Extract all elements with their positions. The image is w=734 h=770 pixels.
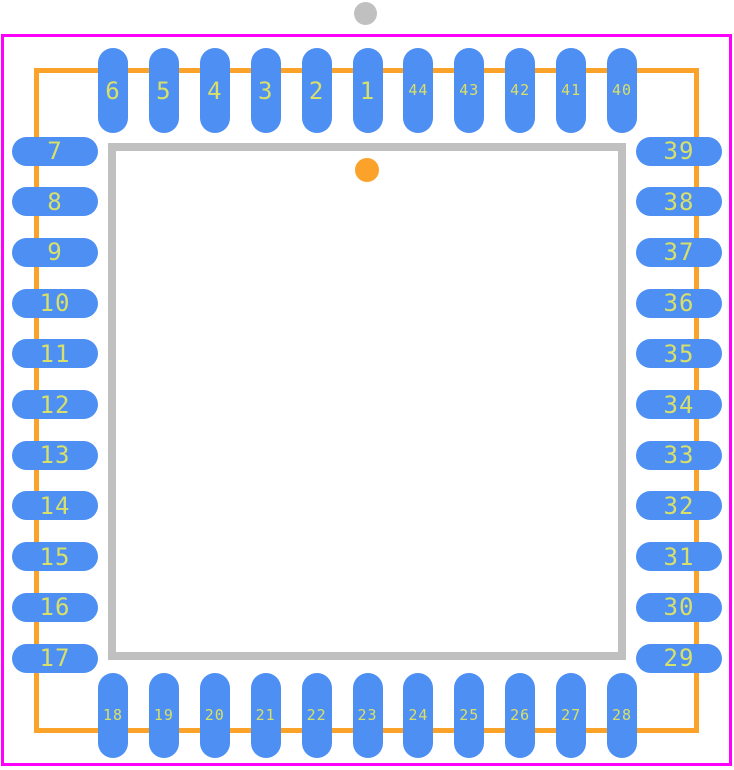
pad-number: 16 (40, 595, 71, 619)
pad-32[interactable]: 32 (636, 491, 722, 520)
pad-33[interactable]: 33 (636, 441, 722, 470)
pad-35[interactable]: 35 (636, 339, 722, 368)
pad-number: 37 (664, 240, 695, 264)
pad-number: 4 (207, 79, 222, 103)
pad-5[interactable]: 5 (149, 48, 179, 133)
pad-25[interactable]: 25 (454, 673, 484, 758)
pad-18[interactable]: 18 (98, 673, 128, 758)
pin1-indicator-dot (355, 158, 379, 182)
pad-31[interactable]: 31 (636, 542, 722, 571)
pad-17[interactable]: 17 (12, 644, 98, 673)
pad-30[interactable]: 30 (636, 593, 722, 622)
pad-number: 12 (40, 393, 71, 417)
pad-number: 40 (612, 83, 632, 98)
pad-6[interactable]: 6 (98, 48, 128, 133)
pad-number: 29 (664, 646, 695, 670)
pad-34[interactable]: 34 (636, 390, 722, 419)
pad-number: 17 (40, 646, 71, 670)
pad-15[interactable]: 15 (12, 542, 98, 571)
pad-number: 13 (40, 443, 71, 467)
pad-29[interactable]: 29 (636, 644, 722, 673)
pad-number: 35 (664, 342, 695, 366)
pad-20[interactable]: 20 (200, 673, 230, 758)
pad-number: 6 (105, 79, 120, 103)
pad-number: 25 (459, 708, 479, 723)
pad-number: 33 (664, 443, 695, 467)
pad-4[interactable]: 4 (200, 48, 230, 133)
pad-number: 23 (357, 708, 377, 723)
pad-number: 39 (664, 139, 695, 163)
footprint-diagram: 6543214443424140181920212223242526272878… (0, 0, 734, 770)
pad-number: 14 (40, 494, 71, 518)
pad-number: 8 (47, 190, 62, 214)
pad-number: 20 (205, 708, 225, 723)
pad-40[interactable]: 40 (607, 48, 637, 133)
pad-number: 44 (408, 83, 428, 98)
pad-37[interactable]: 37 (636, 238, 722, 267)
pad-38[interactable]: 38 (636, 187, 722, 216)
pad-number: 27 (561, 708, 581, 723)
pad-3[interactable]: 3 (251, 48, 281, 133)
pad-41[interactable]: 41 (556, 48, 586, 133)
pad-44[interactable]: 44 (403, 48, 433, 133)
pad-number: 22 (307, 708, 327, 723)
pad-number: 26 (510, 708, 530, 723)
pad-number: 1 (360, 79, 375, 103)
pad-number: 19 (154, 708, 174, 723)
pad-42[interactable]: 42 (505, 48, 535, 133)
pad-22[interactable]: 22 (302, 673, 332, 758)
pad-number: 3 (258, 79, 273, 103)
pad-number: 7 (47, 139, 62, 163)
pad-28[interactable]: 28 (607, 673, 637, 758)
pad-43[interactable]: 43 (454, 48, 484, 133)
pad-27[interactable]: 27 (556, 673, 586, 758)
pad-16[interactable]: 16 (12, 593, 98, 622)
pad-10[interactable]: 10 (12, 289, 98, 318)
pad-number: 32 (664, 494, 695, 518)
pad-36[interactable]: 36 (636, 289, 722, 318)
pad-number: 31 (664, 545, 695, 569)
pad-number: 24 (408, 708, 428, 723)
pad-number: 15 (40, 545, 71, 569)
component-body-outline (108, 143, 626, 660)
pad-26[interactable]: 26 (505, 673, 535, 758)
pad-19[interactable]: 19 (149, 673, 179, 758)
pad-number: 30 (664, 595, 695, 619)
pad-number: 10 (40, 291, 71, 315)
pad-23[interactable]: 23 (353, 673, 383, 758)
pad-number: 34 (664, 393, 695, 417)
pad-number: 11 (40, 342, 71, 366)
pad-14[interactable]: 14 (12, 491, 98, 520)
pad-number: 2 (309, 79, 324, 103)
origin-marker-dot (354, 2, 377, 25)
pad-7[interactable]: 7 (12, 137, 98, 166)
pad-number: 41 (561, 83, 581, 98)
pad-11[interactable]: 11 (12, 339, 98, 368)
pad-12[interactable]: 12 (12, 390, 98, 419)
pad-9[interactable]: 9 (12, 238, 98, 267)
pad-8[interactable]: 8 (12, 187, 98, 216)
pad-2[interactable]: 2 (302, 48, 332, 133)
pad-1[interactable]: 1 (353, 48, 383, 133)
pad-number: 38 (664, 190, 695, 214)
pad-number: 42 (510, 83, 530, 98)
pad-13[interactable]: 13 (12, 441, 98, 470)
pad-21[interactable]: 21 (251, 673, 281, 758)
pad-39[interactable]: 39 (636, 137, 722, 166)
pad-number: 28 (612, 708, 632, 723)
pad-number: 9 (47, 240, 62, 264)
pad-number: 18 (103, 708, 123, 723)
pad-number: 21 (256, 708, 276, 723)
pad-number: 43 (459, 83, 479, 98)
pad-number: 5 (156, 79, 171, 103)
pad-24[interactable]: 24 (403, 673, 433, 758)
pad-number: 36 (664, 291, 695, 315)
